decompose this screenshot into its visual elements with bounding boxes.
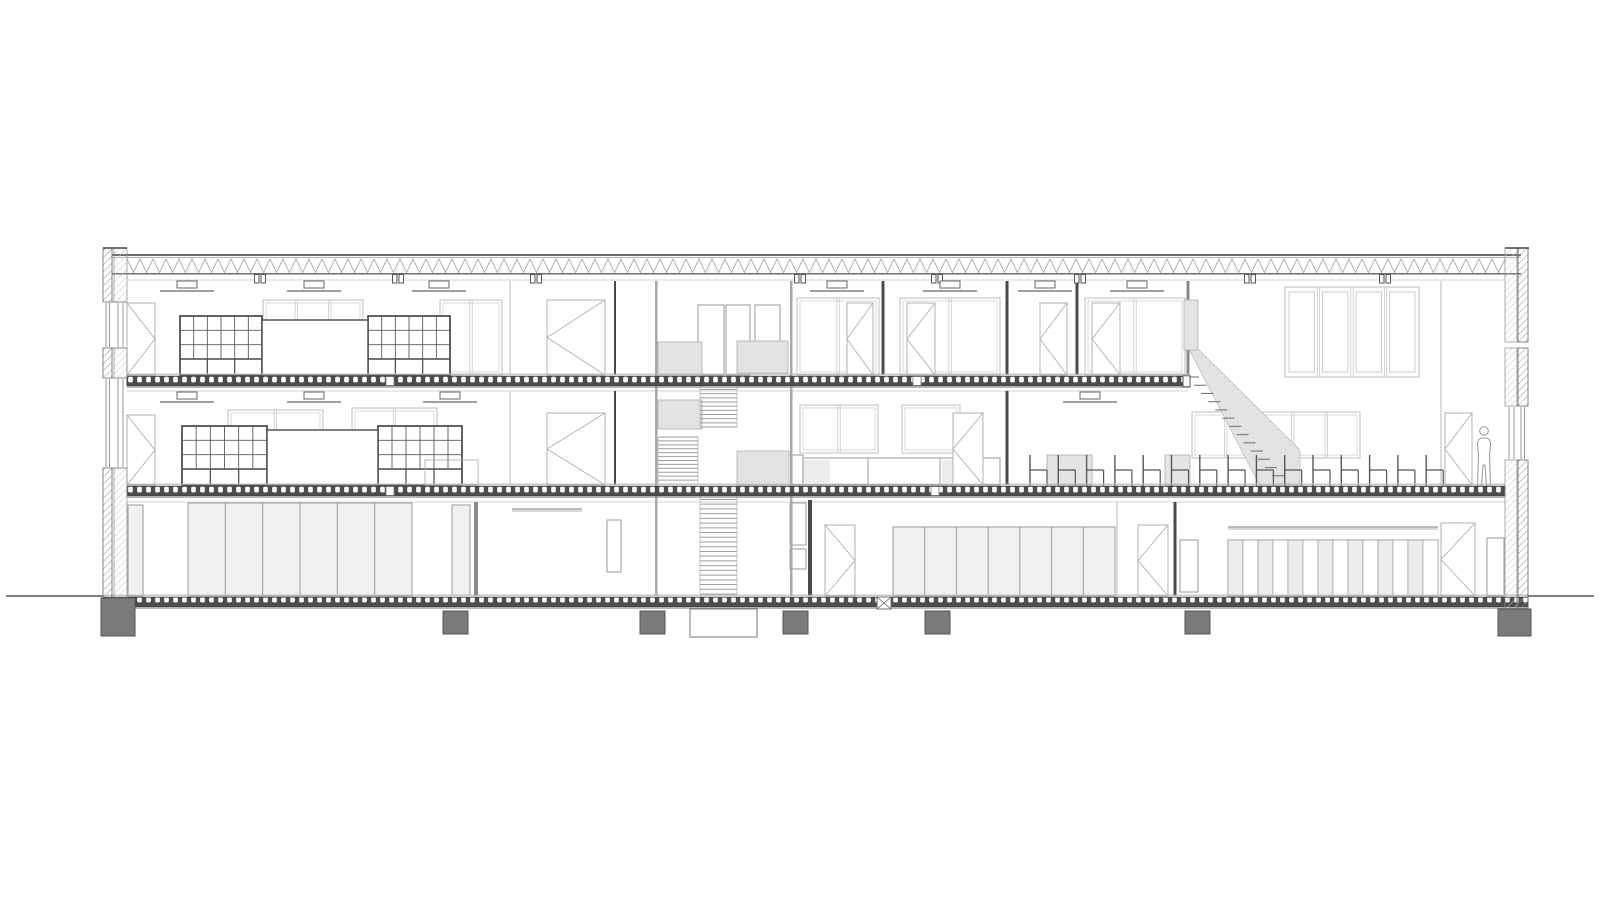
section-drawing-canvas <box>0 0 1600 900</box>
tables-and-counters <box>512 455 1190 511</box>
roof-truss <box>112 255 1521 283</box>
locker-bank <box>1228 527 1438 596</box>
human-figure <box>1478 427 1491 486</box>
building-section-drawing <box>0 0 1600 900</box>
shelving-units <box>180 316 478 485</box>
